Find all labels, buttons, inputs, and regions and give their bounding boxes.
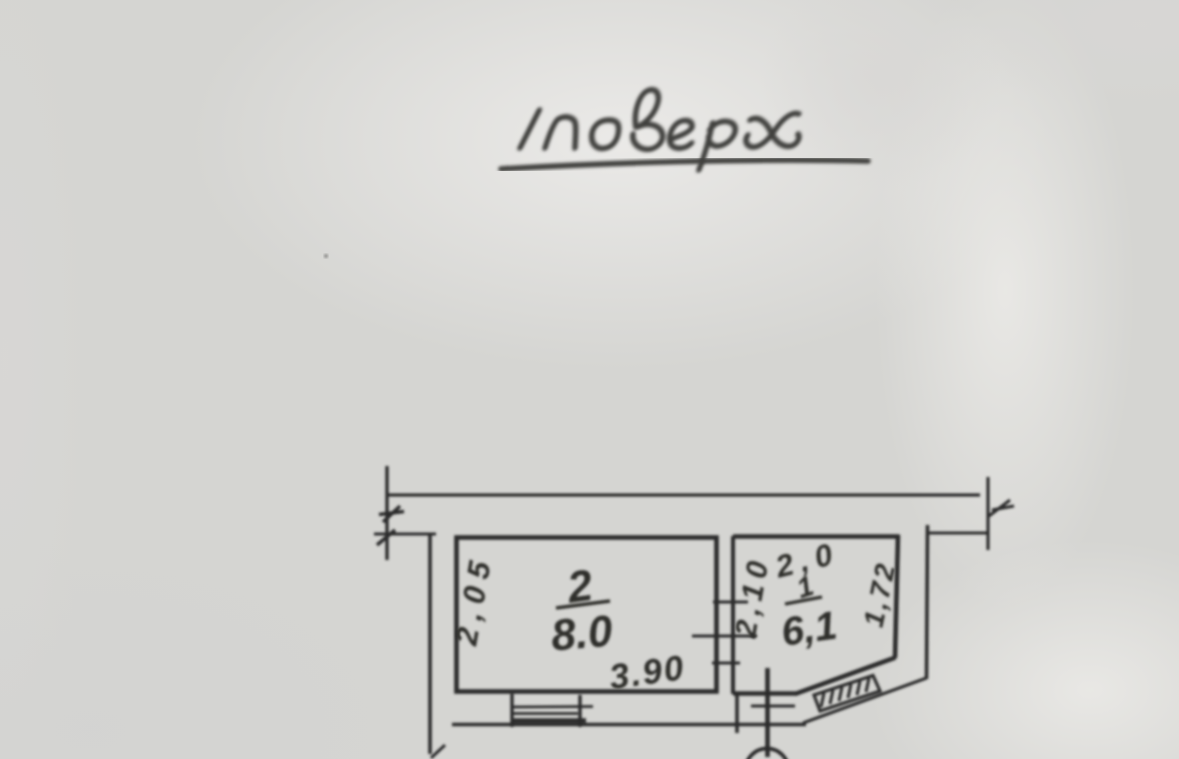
svg-text:8.0: 8.0 [549, 606, 615, 660]
svg-text:6,1: 6,1 [779, 603, 840, 654]
